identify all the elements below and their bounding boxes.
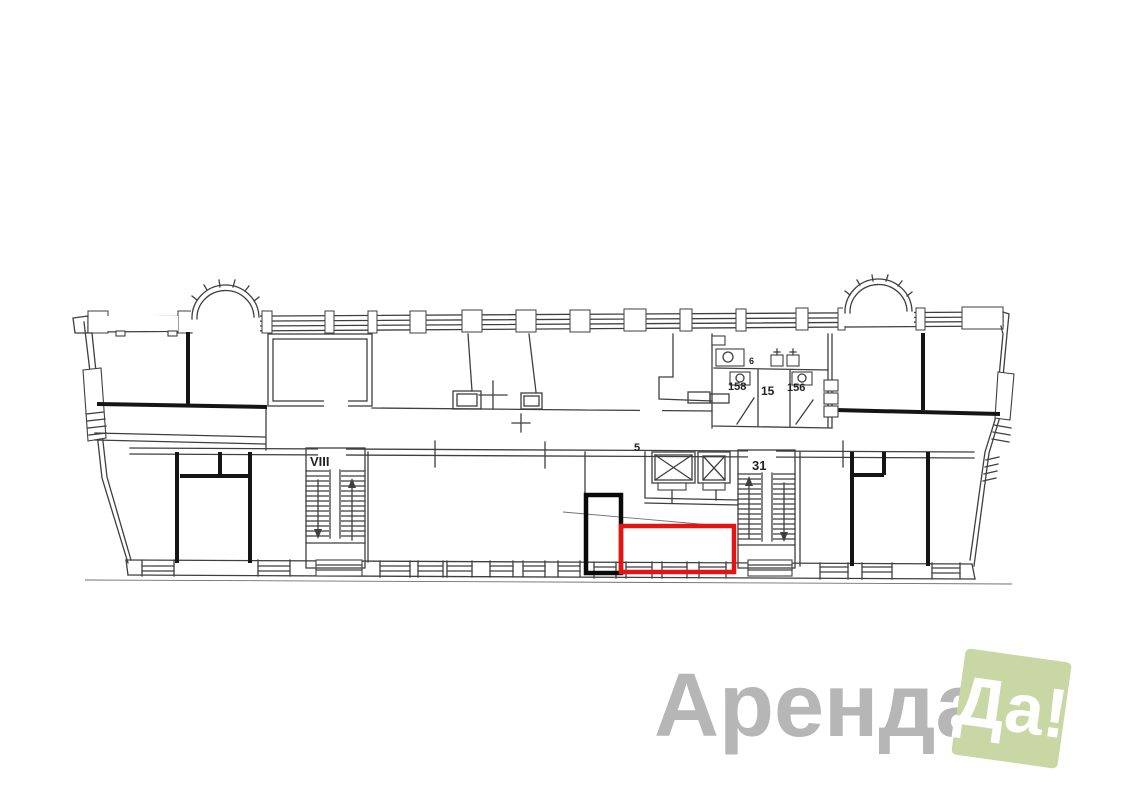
left-staircase: VIII bbox=[306, 448, 365, 568]
highlighted-room-outline bbox=[621, 526, 734, 572]
wc-fixture-label: 6 bbox=[749, 356, 754, 366]
corridor-walls bbox=[95, 406, 974, 468]
left-bay-window bbox=[191, 280, 260, 332]
wc-room-label: 15 bbox=[761, 384, 775, 398]
wc-sink bbox=[716, 349, 744, 366]
right-staircase: 31 bbox=[738, 450, 795, 568]
left-staircase-label: VIII bbox=[310, 454, 330, 469]
right-staircase-label: 31 bbox=[752, 458, 766, 473]
logo-wordmark: Аренда bbox=[654, 661, 986, 751]
wc-block: 158 15 156 6 bbox=[712, 334, 838, 428]
hall-room bbox=[268, 334, 372, 409]
left-exterior-wall bbox=[73, 316, 131, 563]
ground-line bbox=[85, 580, 1012, 584]
arendada-logo: Аренда Да! bbox=[648, 655, 1088, 790]
floorplan-page: 158 15 156 6 VIII 31 bbox=[0, 0, 1123, 800]
bottom-exterior-wall bbox=[126, 560, 975, 579]
wc-right-stall-label: 156 bbox=[787, 382, 805, 394]
elevator-block: 5 bbox=[634, 442, 738, 505]
logo-badge: Да! bbox=[951, 648, 1072, 769]
wc-door-swings bbox=[737, 398, 813, 424]
elevator-lobby-label: 5 bbox=[634, 442, 640, 454]
secondary-room-outline bbox=[586, 495, 621, 573]
right-bay-window bbox=[843, 275, 914, 326]
radiator bbox=[824, 380, 838, 391]
logo-badge-text: Да! bbox=[951, 664, 1072, 749]
wc-left-stall-label: 158 bbox=[728, 381, 746, 393]
right-exterior-wall bbox=[970, 312, 1014, 566]
pillars-and-partitions bbox=[453, 334, 542, 432]
